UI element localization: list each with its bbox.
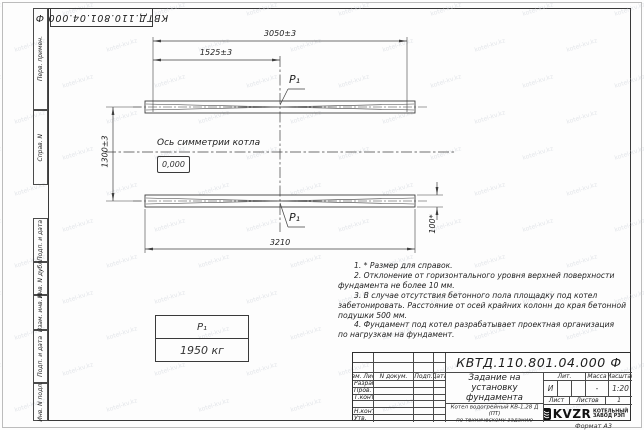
kvzr-emblem-icon xyxy=(544,408,551,420)
sig-cell xyxy=(374,381,414,388)
mass-header: Масса xyxy=(586,373,609,381)
sig-cell xyxy=(374,415,414,422)
lit-header: Лит. xyxy=(544,373,586,381)
dimension-3210: 3210 xyxy=(240,238,320,247)
sig-cell xyxy=(374,401,414,408)
sig-cell xyxy=(434,395,446,402)
sig-cell xyxy=(414,408,434,415)
corner-designation-text: КВТД.110.801.04.000 Ф xyxy=(35,12,168,23)
technical-notes: 1. * Размер для справок. 2. Отклонение о… xyxy=(338,261,634,340)
revision-cell xyxy=(434,363,446,373)
sig-cell xyxy=(414,381,434,388)
sig-cell xyxy=(374,388,414,395)
sig-cell xyxy=(434,408,446,415)
load-value-table: P₁ 1950 кг xyxy=(155,315,249,362)
doc-title-line: Задание на xyxy=(466,373,523,383)
sig-cell xyxy=(414,388,434,395)
note-line: 2. Отклонение от горизонтального уровня … xyxy=(338,271,634,281)
dimension-1300: 1300±3 xyxy=(101,130,112,174)
row-empty xyxy=(353,401,374,408)
format-label: Формат А3 xyxy=(512,422,612,430)
dimension-100: 100* xyxy=(428,206,438,242)
col-izm-list: Изм. Лист xyxy=(353,373,374,381)
col-n-dokum: N докум. xyxy=(374,373,414,381)
dimension-1525: 1525±3 xyxy=(176,48,256,57)
sig-cell xyxy=(434,401,446,408)
note-line: 1. * Размер для справок. xyxy=(338,261,634,271)
note-line: по нагрузкам на фундамент. xyxy=(338,330,634,340)
col-data: Дата xyxy=(434,373,446,381)
load-point-label-bottom: P₁ xyxy=(289,211,300,224)
scale-header: Масштаб xyxy=(609,373,632,381)
sig-cell xyxy=(434,381,446,388)
sig-cell xyxy=(434,415,446,422)
document-designation: КВТД.110.801.04.000 Ф xyxy=(456,355,622,370)
revision-cell xyxy=(414,363,434,373)
product-name: Котел водогрейный КВ-1,28 Д (ПТ) по техн… xyxy=(450,404,539,422)
sig-cell xyxy=(374,408,414,415)
company-logo-row: KVZR КОТЕЛЬНЫЙ ЗАВОД РЭП xyxy=(544,407,632,421)
level-mark-value: 0,000 xyxy=(162,160,185,169)
load-point-label-top: P₁ xyxy=(289,73,300,86)
load-name-cell: P₁ xyxy=(156,316,248,339)
scanned-drawing-sheet: { "watermark": { "text": "kotel-kv.kz" }… xyxy=(0,0,644,430)
doc-title-line: установку xyxy=(466,383,523,393)
row-prov: Пров. xyxy=(353,388,374,395)
row-nkontr: Н.контр. xyxy=(353,408,374,415)
company-cell: KVZR КОТЕЛЬНЫЙ ЗАВОД РЭП xyxy=(544,405,632,422)
doc-title-line: фундамента xyxy=(466,393,523,403)
load-weight-cell: 1950 кг xyxy=(156,339,248,362)
sheets-value: 1 xyxy=(606,397,632,405)
sig-cell xyxy=(414,395,434,402)
symmetry-axis-label: Ось симметрии котла xyxy=(157,138,260,148)
row-razrab: Разраб. xyxy=(353,381,374,388)
row-tkontr: Т.контр. xyxy=(353,395,374,402)
note-line: 3. В случае отсутствия бетонного пола пл… xyxy=(338,291,634,301)
note-line: подушки 500 мм. xyxy=(338,311,634,321)
sig-cell xyxy=(434,388,446,395)
note-line: 4. Фундамент под котел разрабатывает про… xyxy=(338,320,634,330)
revision-cell xyxy=(374,353,414,363)
revision-cell xyxy=(374,363,414,373)
col-podp: Подп. xyxy=(414,373,434,381)
sheets-label: Листов xyxy=(570,397,606,405)
sig-cell xyxy=(414,415,434,422)
sig-cell xyxy=(374,395,414,402)
note-line: забетонировать. Расстояние от осей крайн… xyxy=(338,301,634,311)
corner-designation-stamp: КВТД.110.801.04.000 Ф xyxy=(50,8,153,27)
revision-cell xyxy=(434,353,446,363)
doc-title-cell: Задание на установку фундамента xyxy=(446,373,544,404)
kvzr-logo-text: KVZR xyxy=(553,407,592,421)
revision-cell xyxy=(414,353,434,363)
level-mark-box: 0,000 xyxy=(157,156,190,173)
designation-cell: КВТД.110.801.04.000 Ф xyxy=(446,353,632,373)
row-utv: Утв. xyxy=(353,415,374,422)
product-cell: Котел водогрейный КВ-1,28 Д (ПТ) по техн… xyxy=(446,404,544,422)
note-line: фундамента не более 10 мм. xyxy=(338,281,634,291)
lit-value-2 xyxy=(558,381,572,397)
company-name-line: ЗАВОД РЭП xyxy=(593,414,628,419)
revision-cell xyxy=(353,353,374,363)
mass-value: - xyxy=(586,381,609,397)
revision-cell xyxy=(353,363,374,373)
lit-value-3 xyxy=(572,381,586,397)
doc-title: Задание на установку фундамента xyxy=(466,373,523,403)
scale-value: 1:20 xyxy=(609,381,632,397)
dimension-3050: 3050±3 xyxy=(230,29,330,38)
title-block: Изм. Лист N докум. Подп. Дата Разраб. Пр… xyxy=(352,352,631,421)
company-name: КОТЕЛЬНЫЙ ЗАВОД РЭП xyxy=(593,409,628,419)
sig-cell xyxy=(414,401,434,408)
lit-value: И xyxy=(544,381,558,397)
product-line: Котел водогрейный КВ-1,28 Д (ПТ) xyxy=(450,404,539,416)
sheet-label: Лист xyxy=(544,397,570,405)
